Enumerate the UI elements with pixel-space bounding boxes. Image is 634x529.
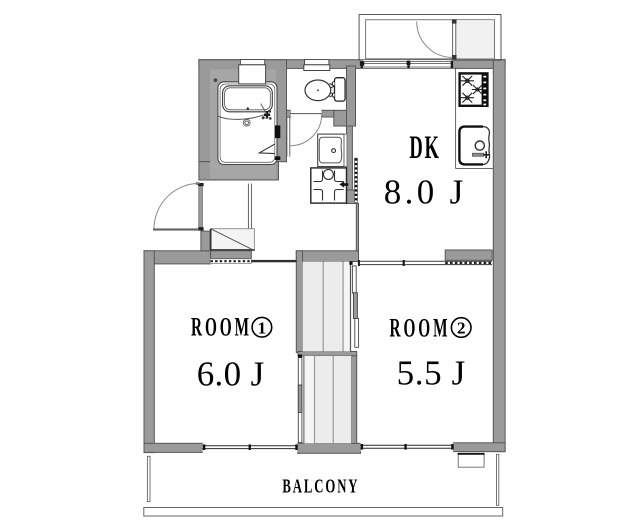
svg-text:8.0 J: 8.0 J [384,172,464,211]
svg-text:5.5 J: 5.5 J [397,354,466,393]
svg-text:1: 1 [258,318,267,337]
svg-text:DK: DK [409,130,440,166]
svg-text:2: 2 [457,319,466,338]
svg-text:BALCONY: BALCONY [282,475,359,497]
svg-text:6.0 J: 6.0 J [197,354,265,393]
svg-text:ROOM: ROOM [191,313,252,342]
svg-text:ROOM: ROOM [390,314,451,343]
